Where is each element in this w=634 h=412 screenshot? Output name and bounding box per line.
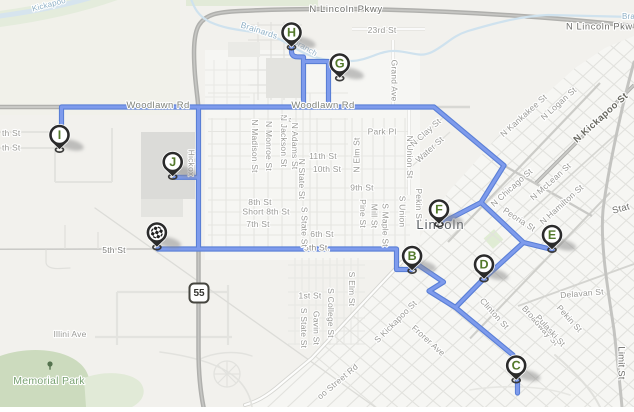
svg-text:F: F [435,202,443,216]
svg-text:Bra: Bra [622,12,634,21]
svg-text:S State St: S State St [299,207,309,248]
svg-text:z: z [288,118,291,124]
svg-text:Pine St: Pine St [358,199,368,228]
svg-text:Limit St: Limit St [615,346,626,379]
svg-text:th St: th St [2,128,21,138]
svg-text:D: D [479,257,488,271]
svg-text:I: I [58,128,61,142]
svg-text:N Madison St: N Madison St [250,119,260,173]
svg-text:Illini Ave: Illini Ave [53,329,86,339]
svg-text:9th St: 9th St [350,182,374,192]
svg-text:N Lincoln Pkwy: N Lincoln Pkwy [309,4,382,15]
svg-text:Park Pl: Park Pl [368,126,397,136]
svg-text:23rd St: 23rd St [368,25,397,35]
svg-text:55: 55 [193,288,205,299]
svg-text:E: E [548,228,556,242]
svg-text:7th St: 7th St [246,219,270,229]
svg-text:Short 8th St: Short 8th St [242,206,290,216]
svg-text:S Union: S Union [397,196,407,228]
svg-text:N Lincoln Pkw: N Lincoln Pkw [566,21,633,31]
svg-text:Woodlawn Rd: Woodlawn Rd [126,100,189,111]
svg-text:N State St: N State St [297,159,307,200]
svg-text:10th St: 10th St [313,164,342,174]
svg-text:Gavin St: Gavin St [311,311,321,346]
svg-text:1st St: 1st St [299,290,322,300]
svg-text:5th St: 5th St [102,245,126,255]
svg-text:Memorial Park: Memorial Park [13,375,85,387]
svg-text:Mill St: Mill St [369,204,379,229]
svg-text:S College St: S College St [326,288,336,338]
svg-text:B: B [408,249,417,263]
svg-text:H: H [287,25,296,39]
svg-text:N Elm St: N Elm St [351,137,361,173]
svg-text:S Elm St: S Elm St [347,272,357,307]
svg-text:J: J [169,155,176,169]
svg-text:N Jackson St: N Jackson St [279,115,289,168]
svg-text:S Maple St: S Maple St [380,203,390,247]
svg-text:S State St: S State St [299,308,309,349]
svg-text:C: C [512,358,521,372]
svg-text:11th St: 11th St [309,151,337,161]
svg-text:th St: th St [2,142,21,152]
svg-text:8th St: 8th St [248,197,272,207]
svg-text:6th St: 6th St [310,229,334,239]
svg-text:Grand Ave: Grand Ave [389,60,399,102]
svg-text:Woodlawn Rd: Woodlawn Rd [291,100,354,111]
svg-text:G: G [335,56,345,70]
svg-text:N Monroe St: N Monroe St [264,121,274,171]
svg-text:z: z [280,115,283,121]
